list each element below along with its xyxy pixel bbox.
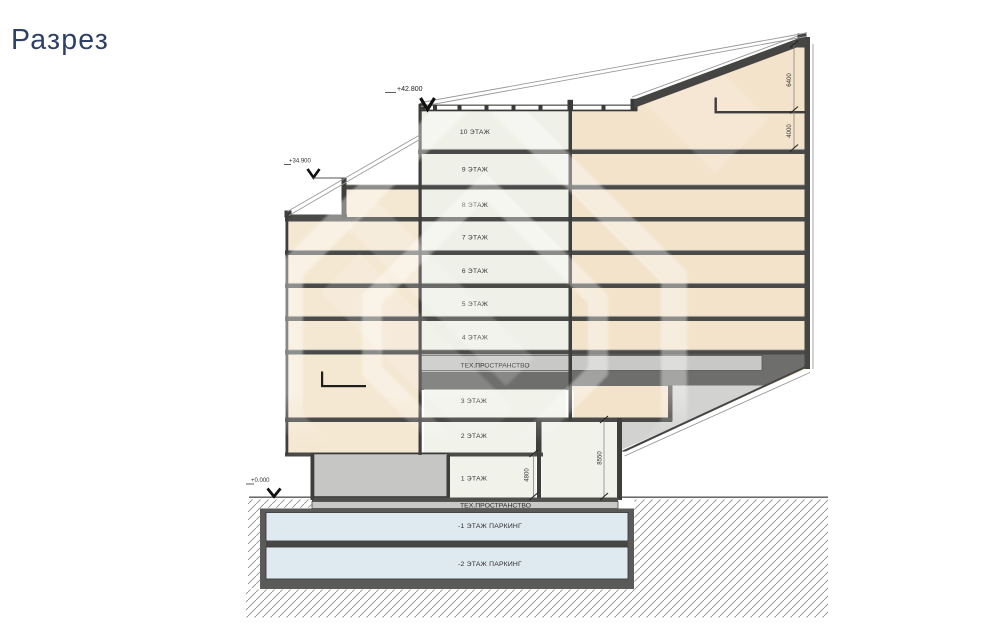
svg-text:4000: 4000 bbox=[787, 124, 793, 138]
svg-text:6400: 6400 bbox=[787, 73, 793, 87]
svg-text:Разрез: Разрез bbox=[11, 24, 109, 56]
svg-text:-2 ЭТАЖ ПАРКИНГ: -2 ЭТАЖ ПАРКИНГ bbox=[458, 561, 522, 568]
svg-text:+34.900: +34.900 bbox=[289, 159, 312, 165]
svg-text:6 ЭТАЖ: 6 ЭТАЖ bbox=[462, 268, 488, 275]
svg-text:8550: 8550 bbox=[598, 451, 604, 465]
svg-text:-1 ЭТАЖ ПАРКИНГ: -1 ЭТАЖ ПАРКИНГ bbox=[458, 523, 522, 530]
svg-text:4800: 4800 bbox=[525, 468, 531, 482]
svg-text:7 ЭТАЖ: 7 ЭТАЖ bbox=[462, 235, 488, 242]
svg-text:+0.000: +0.000 bbox=[251, 478, 270, 484]
svg-text:10 ЭТАЖ: 10 ЭТАЖ bbox=[460, 129, 490, 136]
svg-text:9 ЭТАЖ: 9 ЭТАЖ bbox=[462, 167, 488, 174]
svg-text:+42.800: +42.800 bbox=[397, 86, 423, 93]
